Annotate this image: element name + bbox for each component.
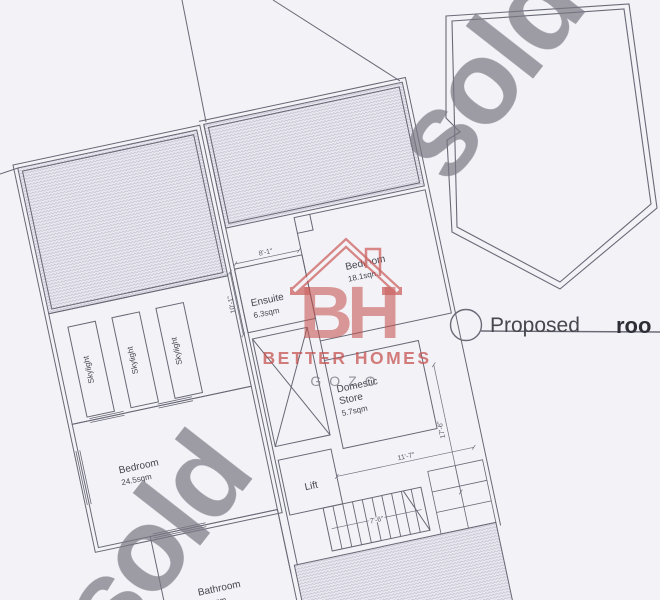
logo-initials: BH xyxy=(300,271,396,354)
title-word-bold: roo xyxy=(616,313,651,338)
floor-plan-scan: Bedroom 18.1sqm Ensuite 6.3sqm Domestic … xyxy=(0,0,660,600)
logo-region: GOZO xyxy=(310,373,383,389)
title-word: Proposed xyxy=(490,314,580,337)
logo-name: BETTER HOMES xyxy=(262,348,431,368)
floor-plan-svg: Bedroom 18.1sqm Ensuite 6.3sqm Domestic … xyxy=(0,0,660,600)
